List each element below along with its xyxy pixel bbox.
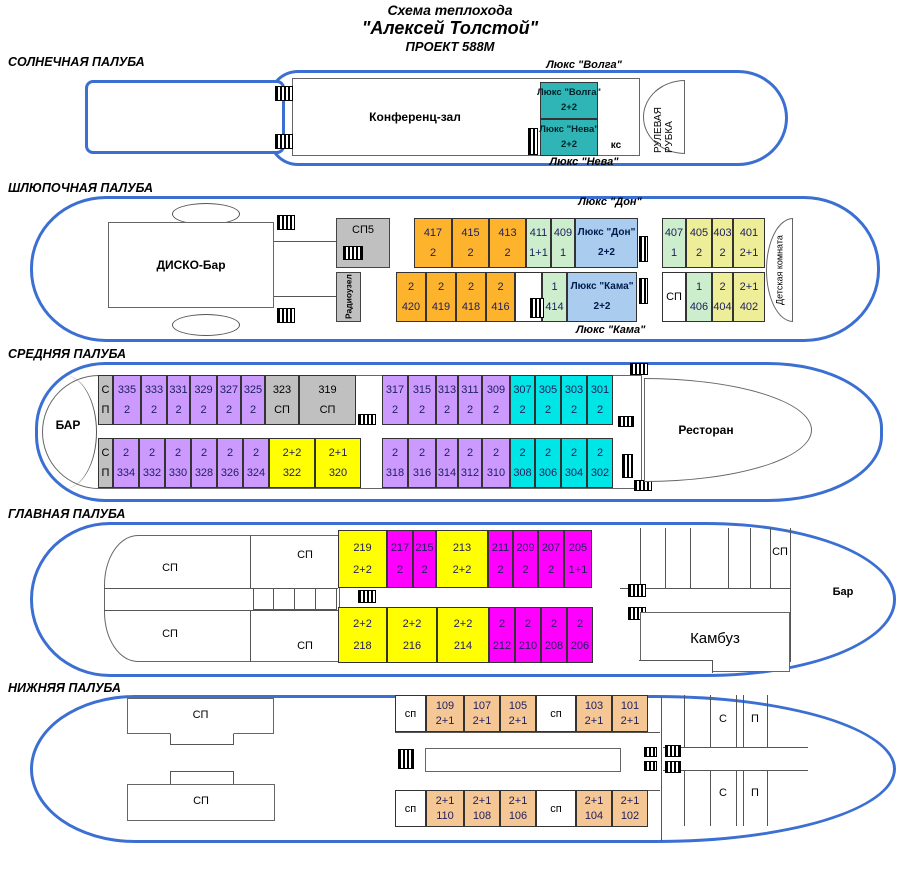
corridor-cell [274,588,295,610]
cabin-307: 3072 [510,375,535,425]
stairs-icon [358,414,376,425]
lower-cabin-row-bottom: сп2+11102+11082+1106сп2+11042+1102 [395,790,648,827]
deck-label-sun: СОЛНЕЧНАЯ ПАЛУБА [8,55,145,69]
deck-middle: БАР СП335233323312329232723252323СП319СП… [0,362,900,508]
main-cabin-row-bottom: 2+22182+22162+22142212221022082206 [338,607,593,663]
cabin-2: 2419 [426,272,456,322]
cabin-С: СП [98,438,113,488]
stairs-icon [528,128,538,155]
cabin-ЛюксВолга: Люкс "Волга"2+2 [540,82,598,119]
partition-wall [767,771,768,826]
stairs-icon [275,86,293,101]
partition-wall [684,695,685,747]
cabin-2+2: 2+2216 [387,607,437,663]
cabin-2: 2316 [408,438,436,488]
cabin-313: 3132 [436,375,458,425]
cabin-217: 2172 [387,530,413,588]
lux-kama-deck-label: Люкс "Кама" [576,324,644,336]
cabin-311: 3112 [458,375,482,425]
stairs-icon [665,761,681,773]
s-letter-label: С [710,713,736,725]
deck-label-main: ГЛАВНАЯ ПАЛУБА [8,507,125,521]
cabin-205: 2051+1 [564,530,592,588]
cabin-сп: сп [536,790,576,827]
cabin-2: 2404 [712,272,733,322]
boat-cabin-row-bottom: 24202419241824161414Люкс "Кама"2+2 [396,272,637,322]
stairs-icon [277,215,295,230]
cabin-413: 4132 [489,218,526,268]
cabin-ЛюксКама: Люкс "Кама"2+2 [567,272,637,322]
cabin-1: 1414 [542,272,567,322]
cabin-325: 3252 [241,375,265,425]
sp5-label: СП5 [336,224,390,236]
cabin-409: 4091 [551,218,575,268]
cabin-315: 3152 [408,375,436,425]
restaurant-label: Ресторан [656,423,756,437]
cabin-101: 1012+1 [612,695,648,732]
cabin-2+1: 2+1104 [576,790,612,827]
cabin-2: 2308 [510,438,535,488]
stairs-icon [343,246,363,260]
cabin-2: 2208 [541,607,567,663]
partition-wall [661,697,662,841]
partition-wall [665,528,666,588]
main-cabin-row-top: 2192+2217221522132+22112209220722051+1 [338,530,592,588]
cabin-317: 3172 [382,375,408,425]
main-right-rooms: СП [620,528,790,589]
lux-neva-deck-label: Люкс "Нева" [528,156,640,168]
stairs-icon [398,749,414,769]
lower-cabin-row-top: сп1092+11072+11052+1сп1032+11012+1 [395,695,648,732]
cabin-2: 2312 [458,438,482,488]
cabin-401: 4012+1 [733,218,765,268]
partition-wall [750,528,751,588]
cabin-301: 3012 [587,375,613,425]
deck-label-boat: ШЛЮПОЧНАЯ ПАЛУБА [8,181,153,195]
cabin-2: 2310 [482,438,510,488]
stairs-icon [358,590,376,603]
cabin-2: 2330 [165,438,191,488]
cabin-2: 2416 [486,272,515,322]
corridor-cell [253,588,274,610]
cabin-323: 323СП [265,375,299,425]
p-letter-label: П [743,787,767,799]
cabin-2+2: 2+2218 [338,607,387,663]
cabin-105: 1052+1 [500,695,536,732]
cabin-2+1: 2+1106 [500,790,536,827]
middle-cabin-row-top-left: СП335233323312329232723252323СП319СП [98,375,356,425]
cabin-319: 319СП [299,375,356,425]
stairs-icon [644,761,657,771]
cabin-2: 2306 [535,438,561,488]
stairs-icon [639,278,648,304]
middle-cabin-row-bottom-left: СП2334233223302328232623242+23222+1320 [98,438,361,488]
cabin-2: 2324 [243,438,269,488]
stairs-icon [630,363,648,375]
cabin-415: 4152 [452,218,489,268]
cabin-2: 2334 [113,438,139,488]
cabin-403: 4032 [712,218,733,268]
cabin-329: 3292 [190,375,217,425]
stairs-icon [275,134,293,149]
partition-wall [770,528,771,588]
stairs-icon [622,454,633,478]
cabin-2+2: 2+2322 [269,438,315,488]
cabin-305: 3052 [535,375,561,425]
partition-wall [640,528,641,588]
cabin-ЛюксНева: Люкс "Нева"2+2 [540,119,598,156]
corridor-cell [316,588,337,610]
sun-open-deck [85,80,285,154]
corridor-line [395,732,660,733]
lifeboat-shape [172,314,240,336]
boat-cabin-row-right-top: 4071405240324012+1 [662,218,765,268]
stairs-icon [628,584,646,597]
corridor-line [104,610,338,611]
sp-room-label: СП [127,709,274,721]
cabin-207: 2072 [538,530,564,588]
deck-label-lower: НИЖНЯЯ ПАЛУБА [8,681,121,695]
partition-wall [684,771,685,826]
partition-wall [767,695,768,747]
cabin-2: 2326 [217,438,243,488]
boat-cabin-row-top: 4172415241324111+14091Люкс "Дон"2+2 [414,218,638,268]
middle-cabin-row-top-right: 317231523132311230923072305230323012 [382,375,613,425]
deck-label-middle: СРЕДНЯЯ ПАЛУБА [8,347,126,361]
partition-wall [736,771,737,826]
cabin-211: 2112 [488,530,513,588]
cabin-219: 2192+2 [338,530,387,588]
title-line2: "Алексей Толстой" [230,18,670,39]
cabin-2: 2302 [587,438,613,488]
cabin-335: 3352 [113,375,141,425]
sp-room-label: СП [150,628,190,640]
cabin-сп: сп [536,695,576,732]
cabin-сп: сп [395,790,426,827]
galley-label: Камбуз [650,630,780,647]
ship-deck-plan: Схема теплохода "Алексей Толстой" ПРОЕКТ… [0,0,900,869]
stairs-icon [530,298,544,318]
cabin-309: 3092 [482,375,510,425]
ks-label: кс [600,140,632,151]
title-line3: ПРОЕКТ 588М [230,39,670,54]
sp-room-top-extension [170,733,234,745]
corridor-cell [295,588,316,610]
diagram-title: Схема теплохода "Алексей Толстой" ПРОЕКТ… [230,2,670,54]
cabin-333: 3332 [141,375,167,425]
cabin-СП: СП [662,272,686,322]
lower-right-rooms-top: С П [663,695,808,748]
partition-wall [736,695,737,747]
lower-right-rooms-bottom: С П [663,770,808,826]
lux-volga-deck-label: Люкс "Волга" [528,59,640,71]
cabin-213: 2132+2 [436,530,488,588]
engine-casing [425,748,621,772]
sp-room-label: СП [127,795,275,807]
partition-wall [690,528,691,588]
sp-room-label: СП [285,640,325,652]
partition-wall [250,610,251,662]
cabin-2: 2212 [489,607,515,663]
cabin-2: 2418 [456,272,486,322]
cabin-103: 1032+1 [576,695,612,732]
cabin-2: 2332 [139,438,165,488]
cabin-405: 4052 [686,218,712,268]
sp-room-bottom-extension [170,771,234,785]
cabin-2+1: 2+1320 [315,438,361,488]
cabin-2+1: 2+1402 [733,272,765,322]
deck-lower: СП СП сп1092+11072+11052+1сп1032+11012+1… [0,695,900,847]
cabin-2+1: 2+1108 [464,790,500,827]
stairs-icon [639,236,648,262]
cabin-417: 4172 [414,218,452,268]
cabin-411: 4111+1 [526,218,551,268]
cabin-сп: сп [395,695,426,732]
stairs-icon [277,308,295,323]
lux-don-deck-label: Люкс "Дон" [576,196,644,208]
cabin-2+1: 2+1110 [426,790,464,827]
cabin-2: 2420 [396,272,426,322]
stairs-icon [665,745,681,757]
deck-boat: ДИСКО-Бар СП5 Радиоузел Люкс "Дон" 41724… [0,196,900,346]
s-letter-label: С [710,787,736,799]
cabin-407: 4071 [662,218,686,268]
conference-hall-label: Конференц-зал [300,110,530,124]
p-letter-label: П [743,713,767,725]
cabin-2: 2314 [436,438,458,488]
stairs-icon [618,416,634,427]
cabin-1: 1406 [686,272,712,322]
cabin-109: 1092+1 [426,695,464,732]
galley-notch [639,660,713,673]
partition-wall [250,535,251,588]
sun-lux-cabins: Люкс "Волга"2+2Люкс "Нева"2+2 [540,82,598,156]
bar-label: БАР [44,418,92,432]
cabin-С: СП [98,375,113,425]
cabin-2: 2318 [382,438,408,488]
cabin-2: 2206 [567,607,593,663]
radio-room: Радиоузел [336,272,361,322]
cabin-331: 3312 [167,375,190,425]
cabin-303: 3032 [561,375,587,425]
cabin-215: 2152 [413,530,436,588]
title-line1: Схема теплохода [230,2,670,18]
cabin-2: 2210 [515,607,541,663]
cabin-2+1: 2+1102 [612,790,648,827]
corridor-lines [274,241,338,297]
sp-room-label: СП [150,562,190,574]
cabin-2: 2328 [191,438,217,488]
middle-cabin-row-bottom-right: 231823162314231223102308230623042302 [382,438,613,488]
stairs-icon [644,747,657,757]
partition-wall [728,528,729,588]
deck-main: СП СП СП СП 2192+2217221522132+221122092… [0,522,900,680]
deck-sun: Конференц-зал Люкс "Волга" Люкс "Волга"2… [0,68,900,180]
cabin-ЛюксДон: Люкс "Дон"2+2 [575,218,638,268]
boat-cabin-row-right-bottom: СП140624042+1402 [662,272,765,322]
corridor-cells [253,588,337,610]
cabin-107: 1072+1 [464,695,500,732]
cabin-2: 2304 [561,438,587,488]
disco-bar-label: ДИСКО-Бар [118,258,264,272]
sp-room-label: СП [285,549,325,561]
stern-bar-label: Бар [815,586,871,598]
partition-wall [790,528,791,662]
cabin-209: 2092 [513,530,538,588]
cabin-2+2: 2+2214 [437,607,489,663]
cabin-327: 3272 [217,375,241,425]
